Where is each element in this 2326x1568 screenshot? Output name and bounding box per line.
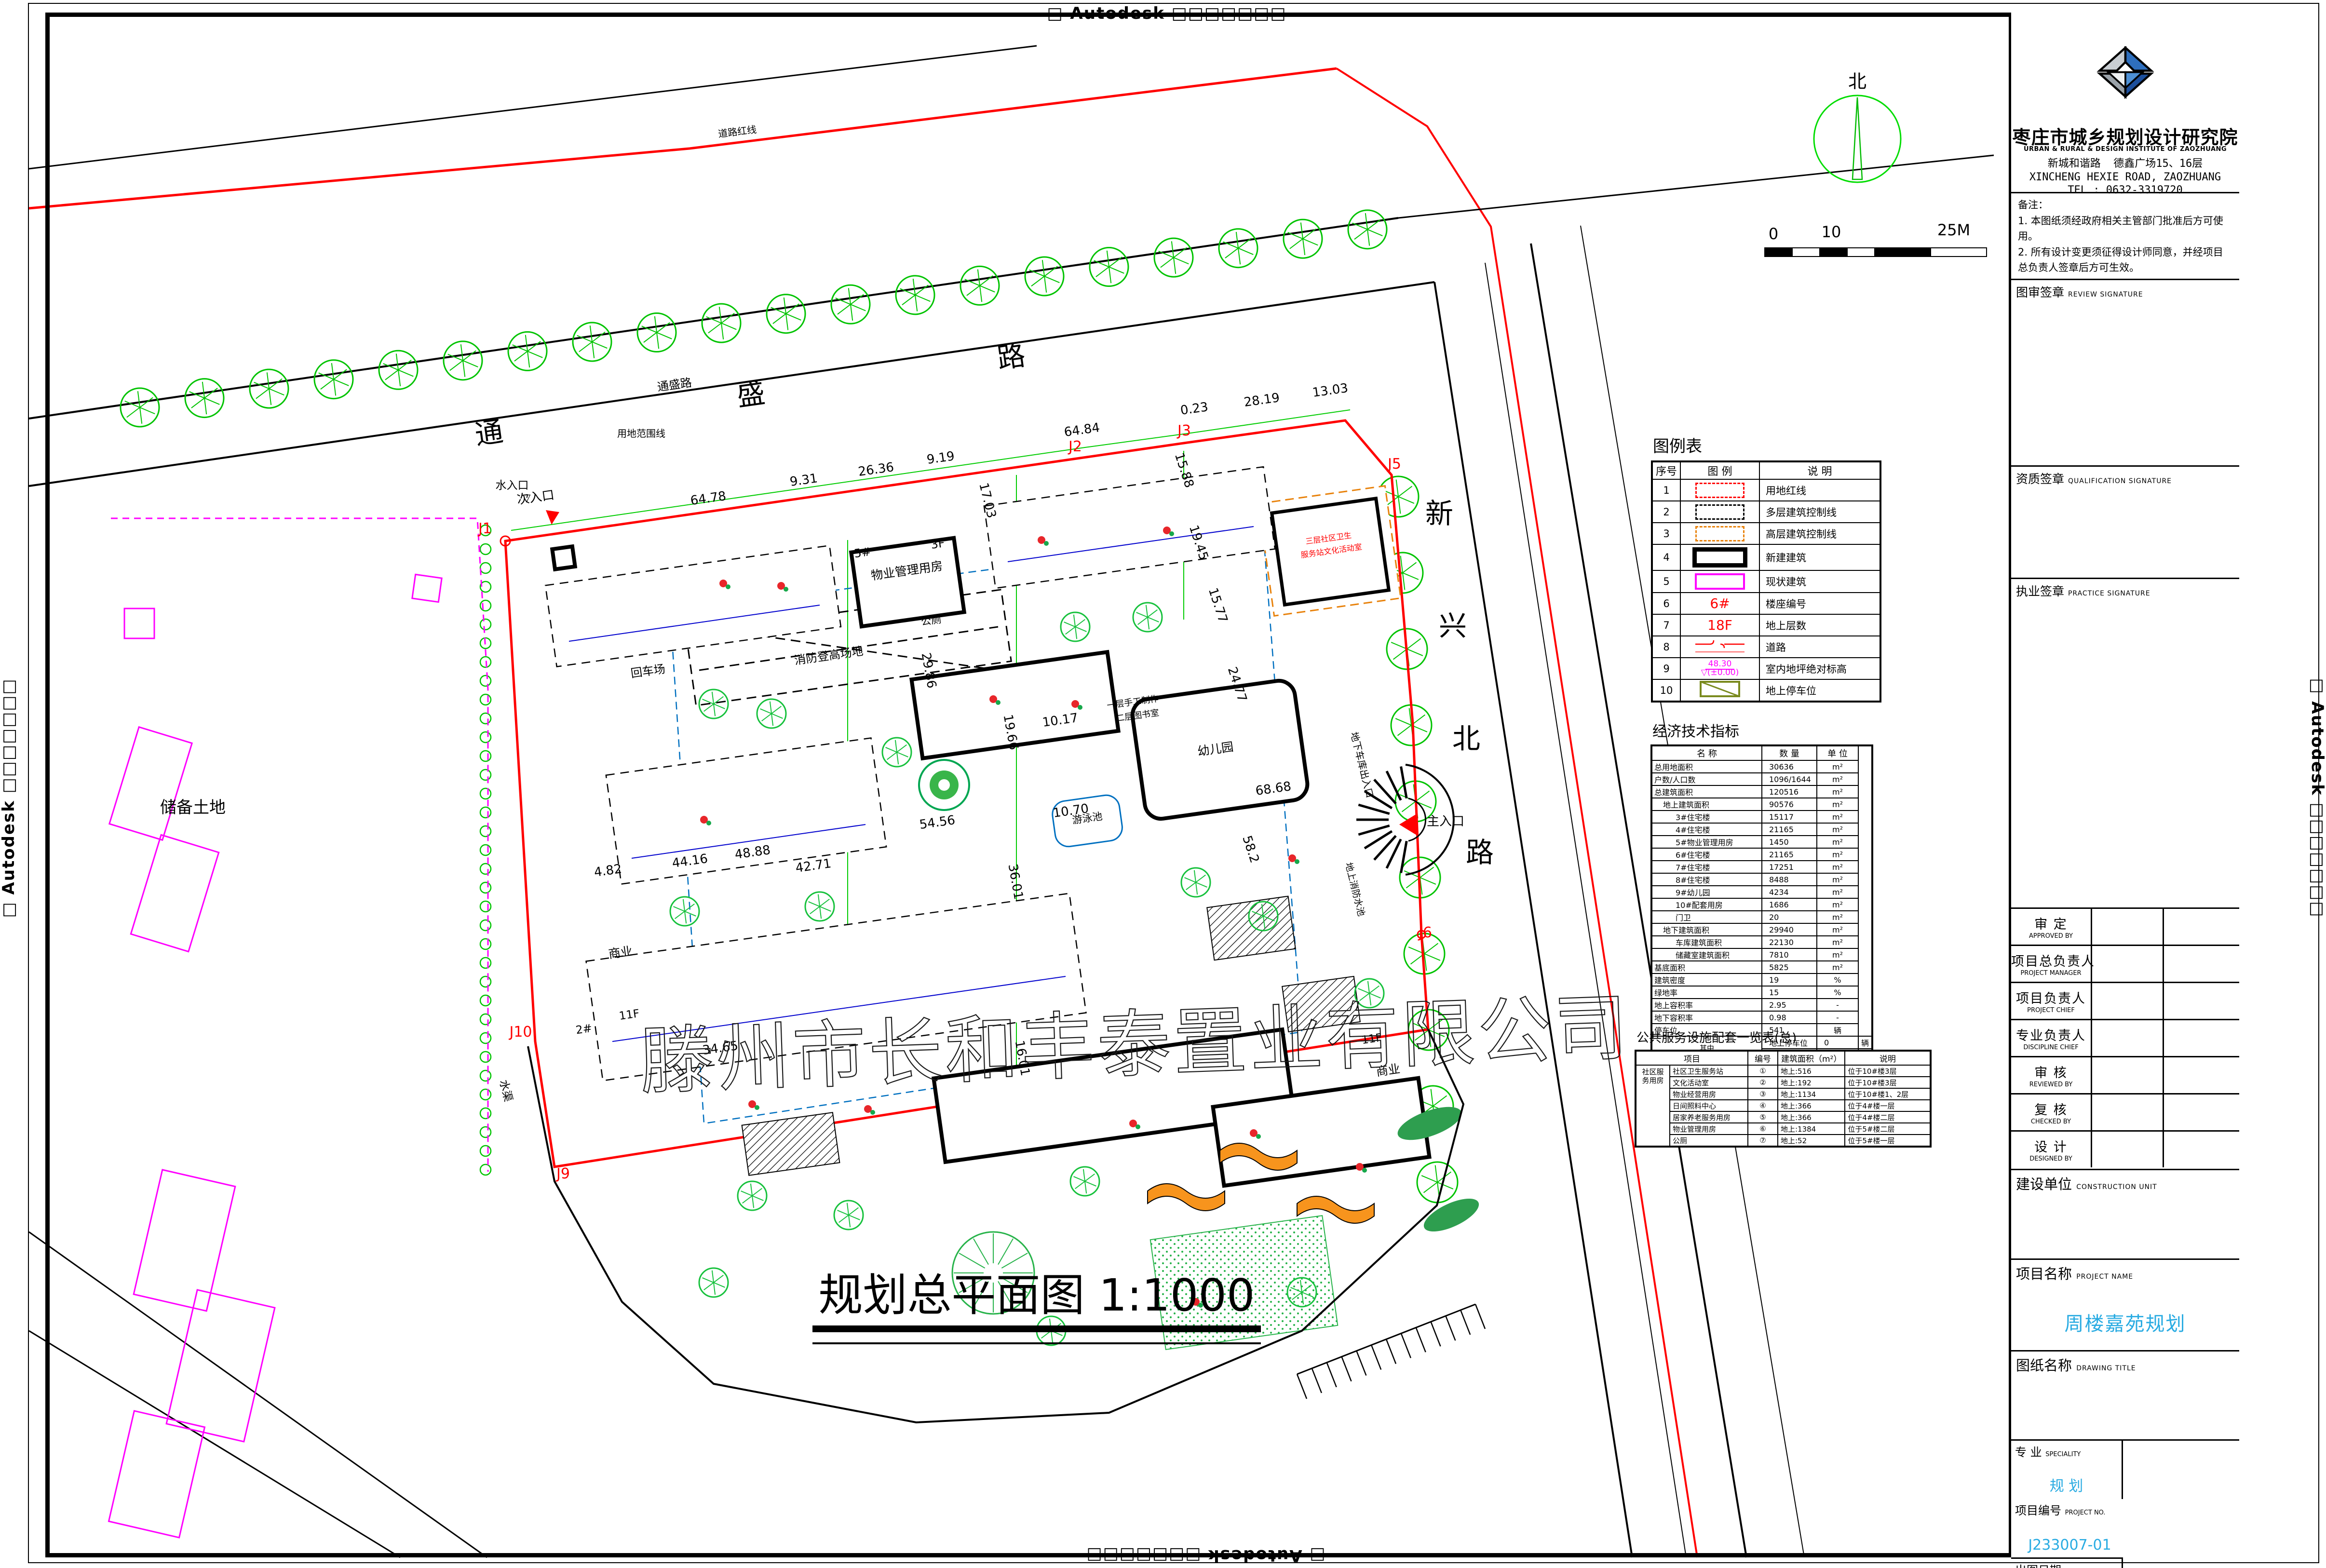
company-address: 新城和谐路 德鑫广场15、16层 XINCHENG HEXIE ROAD, ZA…: [2011, 157, 2239, 197]
date-cell: 出图日期 DATE 2023.07.05: [2011, 1557, 2123, 1568]
practice-signature-label: 执业签章: [2016, 584, 2064, 598]
econ-unit: m²: [1817, 948, 1858, 961]
econ-name: 总建筑面积: [1651, 785, 1762, 798]
legend-no: 9: [1652, 658, 1680, 679]
legend-row: 10地上停车位: [1652, 679, 1880, 702]
review-signature-section: 图审签章 REVIEW SIGNATURE: [2011, 279, 2239, 465]
review-signature-label: 图审签章: [2016, 285, 2064, 299]
svc-area: 地上:516: [1778, 1065, 1845, 1077]
econ-header: 名 称: [1651, 745, 1762, 760]
project-name-label-en: PROJECT NAME: [2076, 1273, 2133, 1281]
construction-unit-label-en: CONSTRUCTION UNIT: [2076, 1183, 2157, 1191]
econ-qty: 90576: [1762, 798, 1817, 811]
econ-qty: 1450: [1762, 836, 1817, 848]
econ-title: 经济技术指标: [1652, 719, 1873, 741]
econ-indicators-table: 名 称数 量单 位总用地面积30636m²户数/人口数1096/1644m²总建…: [1650, 744, 1873, 1063]
note-2: 2. 所有设计变更须征得设计师同意，并经项目总负责人签章后方可生效。: [2018, 244, 2232, 276]
legend-symbol: 6#: [1680, 593, 1759, 614]
econ-name: 7#住宅楼: [1651, 861, 1762, 873]
econ-qty: 29940: [1762, 923, 1817, 936]
econ-name: 3#住宅楼: [1651, 811, 1762, 823]
econ-row: 储藏室建筑面积7810m²: [1651, 948, 1872, 961]
econ-name: 地上容积率: [1651, 999, 1762, 1011]
signature-cell: [2164, 1057, 2239, 1093]
legend-no: 8: [1652, 636, 1680, 658]
econ-unit: m²: [1817, 873, 1858, 886]
signature-row: 复 核CHECKED BY: [2011, 1093, 2239, 1130]
econ-row: 户数/人口数1096/1644m²: [1651, 773, 1872, 785]
project-name-label: 项目名称: [2016, 1266, 2072, 1282]
econ-header: 数 量: [1762, 745, 1817, 760]
econ-qty: 5825: [1762, 961, 1817, 973]
econ-row: 5#物业管理用房1450m²: [1651, 836, 1872, 848]
legend-no: 6: [1652, 593, 1680, 614]
signature-role-label: 审 定APPROVED BY: [2011, 909, 2092, 945]
company-name-en: URBAN & RURAL & DESIGN INSTITUTE OF ZAOZ…: [2011, 146, 2239, 153]
econ-row: 地下建筑面积29940m²: [1651, 923, 1872, 936]
econ-unit: m²: [1817, 823, 1858, 836]
svc-note: 位于4#楼二层: [1845, 1111, 1931, 1123]
legend-row: 5现状建筑: [1652, 570, 1880, 593]
svc-note: 位于5#楼二层: [1845, 1123, 1931, 1135]
econ-qty: 21165: [1762, 823, 1817, 836]
notes-title: 备注：: [2018, 197, 2232, 213]
legend-panel: 图例表 序号图 例说 明1用地红线2多层建筑控制线3高层建筑控制线4新建建筑5现…: [1651, 433, 1881, 703]
drawing-title-section: 图纸名称 DRAWING TITLE: [2011, 1350, 2239, 1439]
legend-no: 10: [1652, 679, 1680, 702]
signature-cell: [2164, 909, 2239, 945]
econ-row: 3#住宅楼15117m²: [1651, 811, 1872, 823]
legend-row: 66#楼座编号: [1652, 593, 1880, 614]
speciality-label: 专 业: [2015, 1446, 2042, 1459]
svc-no: ②: [1748, 1077, 1778, 1088]
project-no-label-en: PROJECT NO.: [2065, 1509, 2106, 1516]
signature-role-label: 项目总负责人PROJECT MANAGER: [2011, 946, 2092, 982]
services-title: 公共服务设施配套一览表(总): [1636, 1028, 1932, 1046]
legend-symbol: [1680, 501, 1759, 523]
signature-cell: [2092, 946, 2164, 982]
signature-cell: [2164, 946, 2239, 982]
signature-cell: [2092, 1057, 2164, 1093]
econ-header: 单 位: [1817, 745, 1858, 760]
svc-header: 建筑面积（m²）: [1778, 1051, 1845, 1065]
legend-symbol: [1680, 544, 1759, 570]
signature-cell: [2164, 1095, 2239, 1130]
svc-name: 物业管理用房: [1670, 1123, 1748, 1135]
svc-note: 位于10#楼3层: [1845, 1065, 1931, 1077]
econ-unit: m²: [1817, 961, 1858, 973]
legend-table: 序号图 例说 明1用地红线2多层建筑控制线3高层建筑控制线4新建建筑5现状建筑6…: [1651, 460, 1881, 703]
legend-header: 说 明: [1759, 461, 1880, 479]
econ-unit: m²: [1817, 848, 1858, 861]
drawing-title-label: 图纸名称: [2016, 1357, 2072, 1374]
econ-row: 建筑密度19%: [1651, 973, 1872, 986]
econ-row: 车库建筑面积22130m²: [1651, 936, 1872, 948]
legend-no: 2: [1652, 501, 1680, 523]
project-no-value: J233007-01: [2011, 1537, 2128, 1554]
econ-unit: m²: [1817, 861, 1858, 873]
econ-row: 地下容积率0.98-: [1651, 1011, 1872, 1024]
econ-row: 9#幼儿园4234m²: [1651, 886, 1872, 898]
svc-name: 日间照料中心: [1670, 1100, 1748, 1111]
practice-signature-section: 执业签章 PRACTICE SIGNATURE: [2011, 578, 2239, 907]
signature-role-label: 项目负责人PROJECT CHIEF: [2011, 983, 2092, 1019]
econ-qty: 22130: [1762, 936, 1817, 948]
econ-row: 8#住宅楼8488m²: [1651, 873, 1872, 886]
date-label: 出图日期: [2015, 1564, 2061, 1568]
speciality-label-en: SPECIALITY: [2045, 1451, 2081, 1458]
legend-header: 序号: [1652, 461, 1680, 479]
legend-symbol: [1680, 570, 1759, 593]
econ-unit: m²: [1817, 811, 1858, 823]
signature-cell: [2164, 1132, 2239, 1167]
svc-note: 位于5#楼一层: [1845, 1135, 1931, 1147]
econ-qty: 20: [1762, 911, 1817, 923]
legend-symbol: 48.30▽(±0.00): [1680, 658, 1759, 679]
econ-unit: m²: [1817, 923, 1858, 936]
svc-category: 社区服务用房: [1636, 1065, 1670, 1147]
econ-name: 储藏室建筑面积: [1651, 948, 1762, 961]
legend-desc: 用地红线: [1759, 479, 1880, 501]
svc-header: 说明: [1845, 1051, 1931, 1065]
signature-cell: [2164, 1020, 2239, 1056]
legend-no: 5: [1652, 570, 1680, 593]
svc-area: 地上:192: [1778, 1077, 1845, 1088]
services-table: 项目编号建筑面积（m²）说明社区服务用房社区卫生服务站①地上:516位于10#楼…: [1635, 1050, 1932, 1148]
econ-row: 基底面积5825m²: [1651, 961, 1872, 973]
econ-name: 4#住宅楼: [1651, 823, 1762, 836]
econ-name: 基底面积: [1651, 961, 1762, 973]
econ-row: 6#住宅楼21165m²: [1651, 848, 1872, 861]
signature-rows: 审 定APPROVED BY项目总负责人PROJECT MANAGER项目负责人…: [2011, 907, 2239, 1167]
svc-name: 物业经营用房: [1670, 1088, 1748, 1100]
legend-header: 图 例: [1680, 461, 1759, 479]
econ-row: 10#配套用房1686m²: [1651, 898, 1872, 911]
legend-row: 8道路: [1652, 636, 1880, 658]
econ-name: 总用地面积: [1651, 760, 1762, 773]
econ-qty: 1096/1644: [1762, 773, 1817, 785]
project-no-cell: 项目编号 PROJECT NO. J233007-01: [2011, 1499, 2128, 1557]
econ-name: 6#住宅楼: [1651, 848, 1762, 861]
econ-qty: 19: [1762, 973, 1817, 986]
legend-desc: 新建建筑: [1759, 544, 1880, 570]
sheet-inner-border: [45, 13, 2239, 1557]
title-block: 枣庄市城乡规划设计研究院 URBAN & RURAL & DESIGN INST…: [2009, 13, 2239, 1557]
svc-area: 地上:1384: [1778, 1123, 1845, 1135]
legend-symbol: [1680, 523, 1759, 544]
svc-note: 位于4#楼一层: [1845, 1100, 1931, 1111]
company-name: 枣庄市城乡规划设计研究院: [2011, 122, 2239, 149]
legend-desc: 室内地坪绝对标高: [1759, 658, 1880, 679]
econ-unit: m²: [1817, 886, 1858, 898]
econ-qty: 120516: [1762, 785, 1817, 798]
legend-desc: 楼座编号: [1759, 593, 1880, 614]
legend-desc: 地上层数: [1759, 614, 1880, 636]
svc-row: 公厕⑦地上:52位于5#楼一层: [1636, 1135, 1931, 1147]
qualification-signature-label-en: QUALIFICATION SIGNATURE: [2068, 477, 2172, 485]
legend-desc: 现状建筑: [1759, 570, 1880, 593]
econ-name: 绿地率: [1651, 986, 1762, 999]
econ-row: 地上容积率2.95-: [1651, 999, 1872, 1011]
signature-cell: [2092, 1020, 2164, 1056]
econ-name: 地下容积率: [1651, 1011, 1762, 1024]
econ-qty: 17251: [1762, 861, 1817, 873]
econ-name: 户数/人口数: [1651, 773, 1762, 785]
svc-no: ⑦: [1748, 1135, 1778, 1147]
svc-name: 居家养老服务用房: [1670, 1111, 1748, 1123]
svc-note: 位于10#楼1、2层: [1845, 1088, 1931, 1100]
econ-unit: -: [1817, 1011, 1858, 1024]
econ-qty: 21165: [1762, 848, 1817, 861]
econ-row: 4#住宅楼21165m²: [1651, 823, 1872, 836]
econ-qty: 15: [1762, 986, 1817, 999]
econ-qty: 1686: [1762, 898, 1817, 911]
econ-qty: 4234: [1762, 886, 1817, 898]
econ-unit: m²: [1817, 911, 1858, 923]
svc-row: 居家养老服务用房⑤地上:366位于4#楼二层: [1636, 1111, 1931, 1123]
econ-qty: 8488: [1762, 873, 1817, 886]
legend-title: 图例表: [1653, 433, 1881, 457]
svc-header: 编号: [1748, 1051, 1778, 1065]
speciality-value: 规 划: [2011, 1474, 2122, 1495]
econ-row: 总用地面积30636m²: [1651, 760, 1872, 773]
notes-block: 备注： 1. 本图纸须经政府相关主管部门批准后方可使用。 2. 所有设计变更须征…: [2011, 192, 2239, 279]
legend-symbol: [1680, 679, 1759, 702]
svc-row: 物业经营用房③地上:1134位于10#楼1、2层: [1636, 1088, 1931, 1100]
econ-name: 车库建筑面积: [1651, 936, 1762, 948]
legend-symbol: [1680, 479, 1759, 501]
legend-desc: 地上停车位: [1759, 679, 1880, 702]
svc-no: ④: [1748, 1100, 1778, 1111]
econ-row: 总建筑面积120516m²: [1651, 785, 1872, 798]
legend-desc: 高层建筑控制线: [1759, 523, 1880, 544]
project-name-value: 周楼嘉苑规划: [2011, 1308, 2239, 1336]
legend-no: 3: [1652, 523, 1680, 544]
signature-cell: [2092, 1132, 2164, 1167]
svc-row: 文化活动室②地上:192位于10#楼3层: [1636, 1077, 1931, 1088]
svc-name: 社区卫生服务站: [1670, 1065, 1748, 1077]
svc-area: 地上:366: [1778, 1111, 1845, 1123]
svc-row: 物业管理用房⑥地上:1384位于5#楼二层: [1636, 1123, 1931, 1135]
svc-note: 位于10#楼3层: [1845, 1077, 1931, 1088]
econ-unit: m²: [1817, 898, 1858, 911]
project-name-section: 项目名称 PROJECT NAME 周楼嘉苑规划: [2011, 1258, 2239, 1350]
legend-no: 7: [1652, 614, 1680, 636]
econ-unit: m²: [1817, 836, 1858, 848]
legend-row: 3高层建筑控制线: [1652, 523, 1880, 544]
legend-no: 4: [1652, 544, 1680, 570]
econ-qty: 2.95: [1762, 999, 1817, 1011]
econ-name: 地上建筑面积: [1651, 798, 1762, 811]
econ-unit: m²: [1817, 798, 1858, 811]
services-panel: 公共服务设施配套一览表(总) 项目编号建筑面积（m²）说明社区服务用房社区卫生服…: [1635, 1028, 1932, 1148]
legend-row: 718F地上层数: [1652, 614, 1880, 636]
project-no-label: 项目编号: [2015, 1504, 2061, 1517]
econ-row: 地上建筑面积90576m²: [1651, 798, 1872, 811]
signature-role-label: 专业负责人DISCIPLINE CHIEF: [2011, 1020, 2092, 1056]
practice-signature-label-en: PRACTICE SIGNATURE: [2068, 590, 2150, 597]
svc-row: 社区服务用房社区卫生服务站①地上:516位于10#楼3层: [1636, 1065, 1931, 1077]
legend-row: 1用地红线: [1652, 479, 1880, 501]
svc-no: ③: [1748, 1088, 1778, 1100]
econ-qty: 7810: [1762, 948, 1817, 961]
econ-unit: m²: [1817, 785, 1858, 798]
legend-desc: 道路: [1759, 636, 1880, 658]
econ-name: 8#住宅楼: [1651, 873, 1762, 886]
legend-desc: 多层建筑控制线: [1759, 501, 1880, 523]
legend-row: 4新建建筑: [1652, 544, 1880, 570]
construction-unit-label: 建设单位: [2016, 1176, 2072, 1192]
econ-unit: m²: [1817, 760, 1858, 773]
svc-no: ⑤: [1748, 1111, 1778, 1123]
cad-sheet: □ Autodesk □□□□□□□ □ Autodesk □□□□□□□ □ …: [0, 0, 2326, 1568]
legend-no: 1: [1652, 479, 1680, 501]
signature-row: 设 计DESIGNED BY: [2011, 1130, 2239, 1167]
econ-panel: 经济技术指标 名 称数 量单 位总用地面积30636m²户数/人口数1096/1…: [1650, 719, 1873, 1063]
econ-row: 门卫20m²: [1651, 911, 1872, 923]
econ-qty: 30636: [1762, 760, 1817, 773]
svc-row: 日间照料中心④地上:366位于4#楼一层: [1636, 1100, 1931, 1111]
econ-unit: -: [1817, 999, 1858, 1011]
svc-header: 项目: [1636, 1051, 1748, 1065]
econ-unit: m²: [1817, 773, 1858, 785]
note-1: 1. 本图纸须经政府相关主管部门批准后方可使用。: [2018, 213, 2232, 244]
signature-cell: [2164, 983, 2239, 1019]
legend-row: 2多层建筑控制线: [1652, 501, 1880, 523]
svc-area: 地上:52: [1778, 1135, 1845, 1147]
signature-role-label: 设 计DESIGNED BY: [2011, 1132, 2092, 1167]
qualification-signature-label: 资质签章: [2016, 472, 2064, 486]
econ-name: 9#幼儿园: [1651, 886, 1762, 898]
econ-unit: %: [1817, 973, 1858, 986]
svc-area: 地上:366: [1778, 1100, 1845, 1111]
construction-unit-section: 建设单位 CONSTRUCTION UNIT: [2011, 1169, 2239, 1258]
qualification-signature-section: 资质签章 QUALIFICATION SIGNATURE: [2011, 465, 2239, 578]
legend-row: 948.30▽(±0.00)室内地坪绝对标高: [1652, 658, 1880, 679]
econ-name: 门卫: [1651, 911, 1762, 923]
review-signature-label-en: REVIEW SIGNATURE: [2068, 291, 2143, 298]
econ-name: 地下建筑面积: [1651, 923, 1762, 936]
svc-no: ⑥: [1748, 1123, 1778, 1135]
legend-symbol: [1680, 636, 1759, 658]
svc-name: 公厕: [1670, 1135, 1748, 1147]
econ-row: 绿地率15%: [1651, 986, 1872, 999]
svc-name: 文化活动室: [1670, 1077, 1748, 1088]
signature-row: 项目总负责人PROJECT MANAGER: [2011, 945, 2239, 982]
legend-symbol: 18F: [1680, 614, 1759, 636]
econ-name: 5#物业管理用房: [1651, 836, 1762, 848]
sheet-info-grid: 专 业 SPECIALITY 规 划 项目编号 PROJECT NO. J233…: [2011, 1439, 2239, 1557]
signature-row: 专业负责人DISCIPLINE CHIEF: [2011, 1019, 2239, 1056]
econ-name: 10#配套用房: [1651, 898, 1762, 911]
signature-row: 审 核REVIEWED BY: [2011, 1056, 2239, 1093]
econ-row: 7#住宅楼17251m²: [1651, 861, 1872, 873]
econ-name: 建筑密度: [1651, 973, 1762, 986]
signature-role-label: 复 核CHECKED BY: [2011, 1095, 2092, 1130]
signature-cell: [2092, 983, 2164, 1019]
signature-cell: [2092, 1095, 2164, 1130]
signature-row: 项目负责人PROJECT CHIEF: [2011, 982, 2239, 1019]
svc-area: 地上:1134: [1778, 1088, 1845, 1100]
signature-cell: [2092, 909, 2164, 945]
econ-unit: %: [1817, 986, 1858, 999]
econ-unit: m²: [1817, 936, 1858, 948]
drawing-title-label-en: DRAWING TITLE: [2076, 1365, 2136, 1372]
econ-qty: 0.98: [1762, 1011, 1817, 1024]
svc-no: ①: [1748, 1065, 1778, 1077]
institute-logo-icon: [2011, 46, 2239, 116]
econ-qty: 15117: [1762, 811, 1817, 823]
speciality-cell: 专 业 SPECIALITY 规 划: [2011, 1441, 2123, 1499]
signature-row: 审 定APPROVED BY: [2011, 907, 2239, 945]
signature-role-label: 审 核REVIEWED BY: [2011, 1057, 2092, 1093]
